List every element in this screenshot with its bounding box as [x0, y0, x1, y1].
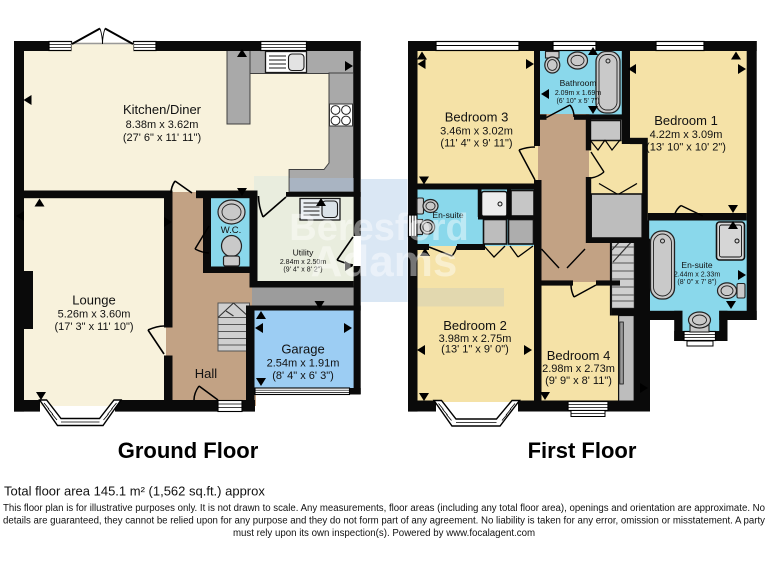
- svg-text:W.C.: W.C.: [221, 225, 242, 236]
- svg-text:Lounge: Lounge: [72, 293, 115, 308]
- svg-text:Total floor area 145.1 m² (1,5: Total floor area 145.1 m² (1,562 sq.ft.)…: [4, 484, 265, 499]
- svg-text:Bedroom 1: Bedroom 1: [654, 113, 718, 128]
- svg-text:(17' 3" x 11' 10"): (17' 3" x 11' 10"): [54, 321, 133, 333]
- svg-text:Bedroom 4: Bedroom 4: [547, 348, 611, 363]
- svg-text:First Floor: First Floor: [528, 438, 637, 463]
- svg-text:Ground Floor: Ground Floor: [118, 438, 259, 463]
- svg-text:2.44m x 2.33m: 2.44m x 2.33m: [674, 272, 720, 279]
- svg-text:8.38m x 3.62m: 8.38m x 3.62m: [126, 119, 199, 131]
- svg-text:details are guaranteed, they c: details are guaranteed, they cannot be r…: [3, 516, 765, 527]
- svg-text:Kitchen/Diner: Kitchen/Diner: [123, 102, 202, 117]
- svg-text:Bedroom 3: Bedroom 3: [445, 110, 509, 125]
- svg-text:(13' 10" x 10' 2"): (13' 10" x 10' 2"): [646, 142, 726, 154]
- svg-text:(9' 9" x 8' 11"): (9' 9" x 8' 11"): [545, 375, 612, 387]
- svg-text:Garage: Garage: [281, 342, 324, 357]
- svg-text:This floor plan is for illustr: This floor plan is for illustrative purp…: [3, 503, 765, 514]
- svg-text:Adams: Adams: [311, 237, 458, 286]
- svg-text:(13' 1" x 9' 0"): (13' 1" x 9' 0"): [441, 344, 509, 356]
- svg-text:Bedroom 2: Bedroom 2: [443, 318, 507, 333]
- svg-text:5.26m x 3.60m: 5.26m x 3.60m: [58, 309, 131, 321]
- svg-text:(27' 6" x 11' 11"): (27' 6" x 11' 11"): [123, 132, 201, 144]
- svg-text:(8' 0" x 7' 8"): (8' 0" x 7' 8"): [677, 279, 716, 286]
- svg-text:En-suite: En-suite: [681, 260, 712, 270]
- svg-text:(8' 4" x 6' 3"): (8' 4" x 6' 3"): [272, 370, 334, 382]
- svg-text:2.54m x 1.91m: 2.54m x 1.91m: [267, 358, 340, 370]
- svg-text:must rely upon its own inspect: must rely upon its own inspection(s). Po…: [233, 528, 535, 539]
- svg-text:Bathroom: Bathroom: [560, 78, 597, 88]
- svg-text:(11' 4" x 9' 11"): (11' 4" x 9' 11"): [440, 138, 512, 150]
- svg-text:3.46m x 3.02m: 3.46m x 3.02m: [440, 126, 513, 138]
- svg-text:4.22m x 3.09m: 4.22m x 3.09m: [650, 129, 723, 141]
- svg-text:Hall: Hall: [195, 366, 218, 381]
- svg-text:2.09m x 1.69m: 2.09m x 1.69m: [555, 90, 601, 97]
- svg-text:(6' 10" x 5' 7"): (6' 10" x 5' 7"): [556, 98, 599, 105]
- svg-text:2.98m x 2.73m: 2.98m x 2.73m: [542, 363, 615, 375]
